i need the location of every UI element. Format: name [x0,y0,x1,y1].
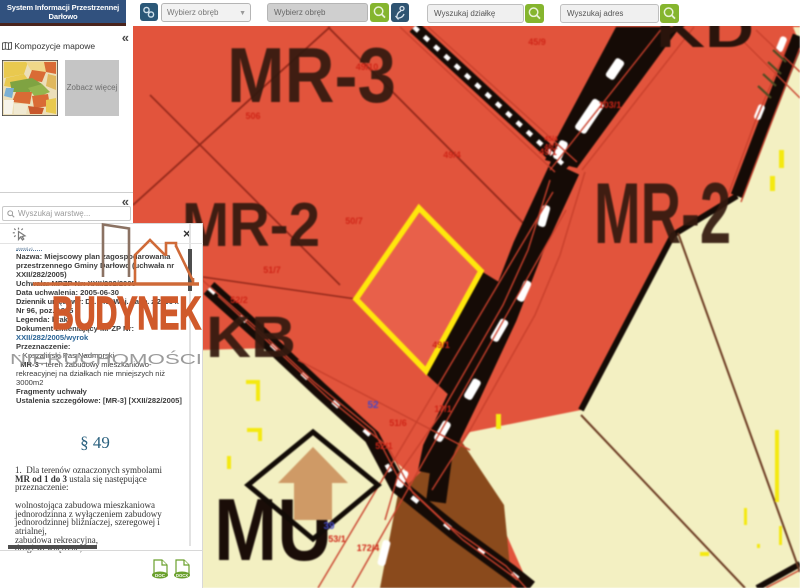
svg-text:BUDYNEK: BUDYNEK [52,287,201,339]
svg-text:NIERUCHOMOŚCI: NIERUCHOMOŚCI [10,350,202,368]
